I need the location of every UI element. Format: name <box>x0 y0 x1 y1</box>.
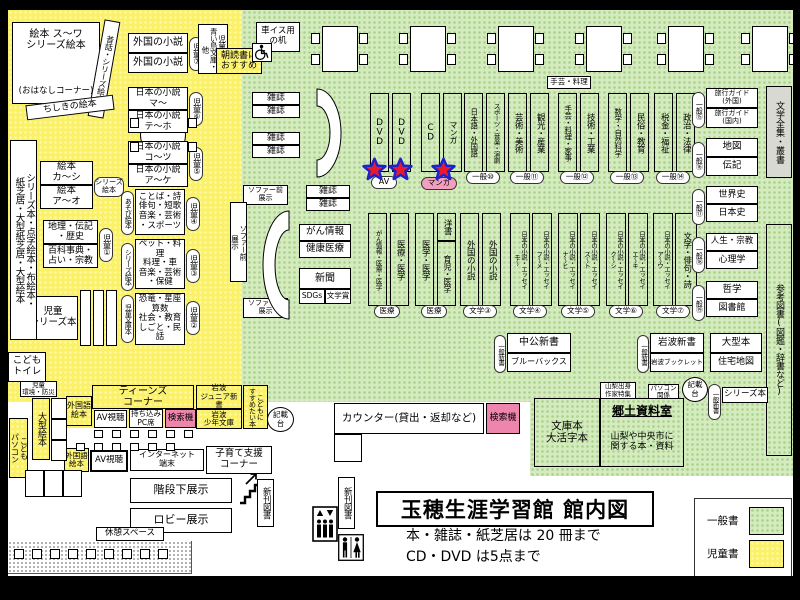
tag-bungaku-4: 文学④ <box>513 305 547 318</box>
chair <box>535 54 544 65</box>
sofa-crescent <box>262 210 290 320</box>
shelf-geijutsu: 芸術・美術 <box>508 93 527 172</box>
chair <box>399 54 408 65</box>
chair <box>94 430 103 438</box>
chair <box>623 54 632 65</box>
tag-ippan-12: 一般⑫ <box>560 171 594 184</box>
library-floor-map: 玉穂生涯学習館 館内図 本・雑誌・紙芝居は 20 冊まで CD・DVD は5点ま… <box>8 10 793 576</box>
chair <box>14 549 24 559</box>
rest-space-label: 休憩スペース <box>96 527 164 541</box>
chair <box>311 54 320 65</box>
ohanashi-corner-label: (おはなしコーナー) <box>8 86 104 98</box>
tag-jido-4: 児童④ <box>186 197 200 231</box>
loan-limit-books: 本・雑誌・紙芝居は 20 冊まで <box>406 526 676 544</box>
legend-general-swatch <box>749 507 784 535</box>
magazine-shelf: 雑誌 <box>306 198 350 211</box>
legend-children-label: 児童書 <box>707 545 749 561</box>
magazine-shelf: 雑誌 <box>252 105 300 118</box>
foreign-novels-shelf: 外国の小説 <box>128 33 188 53</box>
chair <box>148 443 157 451</box>
star-icon <box>431 157 456 182</box>
chair <box>447 33 456 44</box>
magazine-shelf: 雑誌 <box>252 132 300 145</box>
picture-books-a-o: 絵本 ア〜オ <box>40 185 93 209</box>
chair <box>188 118 197 128</box>
chair <box>32 549 42 559</box>
shelf-zeikin: 税金・福祉 <box>654 93 673 172</box>
new-books-shelf-1: 新刊図書 <box>257 479 274 527</box>
kyoryu-shelf: 恐竜・星座 算数 社会・教育 しごと・民話 <box>135 293 185 345</box>
reading-table <box>586 26 622 72</box>
chair <box>741 33 750 44</box>
tag-ippan-16: 一般⑯ <box>692 142 705 178</box>
sofa-front-display: ソファー前 展示 <box>243 185 288 205</box>
chair <box>140 549 150 559</box>
bench-box <box>25 470 44 497</box>
chair <box>623 33 632 44</box>
shelf-bungaku-zenshu: 文学全集・叢書 <box>766 86 792 178</box>
shelf-gijutsu: 技術・工業 <box>580 93 599 172</box>
iwanami-shonen-bunko: 岩波 少年文庫 <box>196 409 242 429</box>
pet-ryori-shelf: ペット・料理 料理・車 音楽・芸術 ・保健 <box>135 239 185 289</box>
chair <box>130 430 139 438</box>
shelf-iryo-igaku: 医療・医学 <box>390 213 409 306</box>
star-icon <box>388 157 413 182</box>
byo-pc-seat: 持ち込み PC席 <box>129 409 163 428</box>
tag-ippan-14: 一般⑭ <box>656 171 690 184</box>
tag-bungaku-6: 文学⑥ <box>609 305 643 318</box>
shelf-nihonshi: 日本史 <box>706 204 758 222</box>
chair <box>311 33 320 44</box>
shelf-chuko-shinsho: 中公新書 <box>507 333 571 353</box>
chiri-denki-shelf: 地理・伝記 ・歴史 <box>43 220 98 244</box>
av-viewing-seat: AV視聴 <box>94 410 127 428</box>
reading-table <box>410 26 446 72</box>
shelf-nihon-essay-fu-me: 日本の小説・エッセイ フ〜メ <box>532 213 552 306</box>
chair <box>148 430 157 438</box>
foreign-picture-books-2: 外国語 絵本 <box>64 448 89 472</box>
shelf-box <box>80 290 91 346</box>
shelf-tetsugaku: 哲学 <box>706 281 758 299</box>
tag-ippan-13: 一般⑬ <box>610 171 644 184</box>
shelf-kanko: 観光・産業 <box>530 93 549 172</box>
tag-jido-5: 児童⑤ <box>189 147 203 181</box>
chair <box>166 443 175 451</box>
chair <box>399 33 408 44</box>
tag-ippan-11: 一般⑪ <box>510 171 544 184</box>
chair <box>130 443 139 451</box>
tag-series-ehon-2: シリーズ絵本 <box>121 243 134 291</box>
chair <box>705 54 714 65</box>
tag-jido-bunko: 児童文庫本 <box>121 295 134 343</box>
chair <box>112 430 121 438</box>
kaidan-shita-display: 階段下展示 <box>130 478 232 503</box>
av-viewing-seat-2: AV視聴 <box>90 450 128 472</box>
shelf-bluebacks: ブルーバックス <box>507 353 571 372</box>
tag-jido-2: 児童② <box>186 301 200 335</box>
loan-limit-av: CD・DVD は5点まで <box>406 547 676 565</box>
shelf-nihongo: 日本語・外国語 <box>464 93 483 172</box>
search-machine-counter: 検索機 <box>486 403 520 434</box>
shelf-igaku: 医学・医学 <box>415 213 434 306</box>
tag-ippan-15: 一般⑮ <box>692 92 705 128</box>
star-icon <box>362 157 387 182</box>
tag-yamanashi-sakka: 山梨出身 作家特集 <box>600 382 636 399</box>
newspaper-shelf: 新聞 <box>299 268 351 289</box>
shelf-box <box>51 419 67 440</box>
shelf-gaikoku-novel: 外国の小説 <box>482 213 501 306</box>
shelf-shugei: 手芸・料理・家事 <box>558 93 577 172</box>
shelf-sekaishi: 世界史 <box>706 186 758 204</box>
chair <box>112 443 121 451</box>
teens-corner-header: ティーンズ コーナー <box>92 385 194 409</box>
chair <box>130 118 139 128</box>
magazine-shelf: 雑誌 <box>252 145 300 158</box>
tag-series-ehon: シリーズ 絵本 <box>94 177 124 197</box>
bench-box <box>63 470 82 497</box>
kosodate-support-corner: 子育て支援 コーナー <box>206 446 272 474</box>
chair <box>487 54 496 65</box>
chair <box>359 33 368 44</box>
kisaidai-writing-stand: 記載 台 <box>267 407 294 432</box>
magazine-shelf: 雑誌 <box>252 92 300 105</box>
shelf-yosho: 洋書 <box>437 213 456 241</box>
shelf-nihon-essay-a-u: 日本の小説・エッセイ ア〜ウ <box>653 213 673 306</box>
shelf-toshokan: 図書館 <box>706 299 758 317</box>
chair <box>789 54 793 65</box>
chair <box>50 549 60 559</box>
chair <box>789 33 793 44</box>
series-tenji-kamishibai-shelf: シリーズ本・点字絵本・布絵本・ 紙芝居・大型紙芝居・大型絵本 <box>10 140 37 340</box>
kodomoni-susumetai: こどもに すすめたい本 <box>243 385 268 429</box>
tag-ippan-shinsho: 一般新書 <box>494 335 506 373</box>
search-machine-teens: 検索機 <box>165 409 196 428</box>
tag-iryo: 医療 <box>374 305 400 318</box>
foreign-novels-shelf: 外国の小説 <box>128 53 188 73</box>
chair <box>487 33 496 44</box>
japanese-novels-a-ke: 日本の小説 ア〜ケ <box>128 164 188 187</box>
tag-ippan-17: 一般⑰ <box>692 189 705 225</box>
shelf-sugaku: 数学・自然科学 <box>608 93 627 172</box>
tag-ippan-18: 一般⑱ <box>692 237 705 273</box>
shelf-travel-foreign: 旅行ガイド (外国) <box>706 88 758 108</box>
shelf-chizu: 地図 <box>706 138 758 157</box>
chair <box>184 430 193 438</box>
shelf-nihon-essay-su-to: 日本の小説・エッセイ ス〜ト <box>580 213 600 306</box>
chair <box>657 33 666 44</box>
chair <box>535 33 544 44</box>
shelf-box <box>51 398 67 419</box>
bench-box <box>44 470 63 497</box>
japanese-novels-ma: 日本の小説 マ〜 <box>128 87 188 110</box>
shelf-box <box>106 290 117 346</box>
shelf-sanko-tosho: 参考図書(図鑑・辞書など) <box>766 224 792 456</box>
shelf-minzoku: 民俗・教育 <box>630 93 649 172</box>
kyodo-shiryo-title: 郷土資料室 <box>602 404 682 420</box>
elevator-icon <box>312 506 338 542</box>
tag-jido-1: 児童① <box>99 228 113 262</box>
shelf-iwanami-booklet: 岩波ブックレット <box>650 353 704 372</box>
tag-ippan-shinsho: 一般新書 <box>637 335 649 373</box>
shelf-shinrigaku: 心理学 <box>706 251 758 269</box>
chair <box>94 443 103 451</box>
tag-ippan-19: 一般⑲ <box>692 285 705 321</box>
chair <box>130 142 139 152</box>
tag-bungaku-5: 文学⑤ <box>561 305 595 318</box>
tag-jido-kankyo: 児童 環境・防災 <box>20 381 57 397</box>
health-medical-shelf: 健康医療 <box>299 241 351 258</box>
shelf-nihon-essay-na-hi: 日本の小説・エッセイ ナ〜ヒ <box>558 213 578 306</box>
counter: カウンター(貸出・返却など) <box>334 403 484 434</box>
chair <box>166 430 175 438</box>
shelf-box <box>93 290 104 346</box>
chair <box>359 54 368 65</box>
reading-table <box>752 26 788 72</box>
tag-ippan-shinsho: 一般新書 <box>708 384 721 420</box>
shelf-jutaku-chizu: 住宅地図 <box>710 353 762 372</box>
chair <box>657 54 666 65</box>
shelf-sports-music: スポーツ・音楽・演劇 <box>486 93 505 172</box>
sofa-front-display-v: ソファー前 展示 <box>230 202 247 282</box>
chair <box>575 33 584 44</box>
magazine-shelf: 雑誌 <box>306 185 350 198</box>
kids-pc: こども パソコン <box>9 418 28 478</box>
sdgs-shelf: SDGs <box>299 289 325 304</box>
restroom-icon <box>338 534 364 561</box>
shelf-series-bon: シリーズ本 <box>722 387 768 403</box>
shelf-nihon-essay-e-ki: 日本の小説・エッセイ エ〜キ <box>628 213 648 306</box>
tag-ippan-10: 一般⑩ <box>466 171 500 184</box>
shelf-ikuji: 育児・医学 <box>437 241 456 306</box>
chair <box>741 54 750 65</box>
shelf-iwanami-shinsho: 岩波新書 <box>650 333 704 353</box>
shelf-gan-iryo: がん情報・医療・医学 <box>368 213 387 306</box>
legend-general-label: 一般書 <box>707 512 749 528</box>
wheelchair-icon <box>252 43 272 62</box>
shelf-denki: 伝記 <box>706 157 758 176</box>
internet-terminal: インターネット 端末 <box>130 449 204 471</box>
page-title: 玉穂生涯学習館 館内図 <box>376 491 654 527</box>
kotoba-shelf: ことば・詩 俳句・短歌 音楽・芸術 ・スポーツ <box>135 189 185 235</box>
ogata-ehon-shelf: 大型絵本 <box>32 398 50 460</box>
chair <box>76 443 85 451</box>
foreign-picture-books: 外国語 絵本 <box>66 396 92 426</box>
chair <box>705 33 714 44</box>
legend-children-swatch <box>749 540 784 568</box>
iwanami-junior-shinsho: 岩波 ジュニア新書 <box>196 385 242 409</box>
chair <box>447 54 456 65</box>
tag-jido-3: 児童③ <box>186 249 200 283</box>
shelf-gaikoku-novel: 外国の小説 <box>460 213 479 306</box>
legend: 一般書 児童書 <box>694 498 792 576</box>
chair <box>122 549 132 559</box>
tag-bungaku-7: 文学⑦ <box>656 305 690 318</box>
kisaidai-writing-stand: 記載 台 <box>682 377 708 402</box>
bungakusho-shelf: 文学賞 <box>325 289 351 304</box>
tag-shugei-ryori: 手芸・料理 <box>547 76 591 89</box>
reading-table <box>322 26 358 72</box>
shelf-nihon-essay-ku-shi: 日本の小説・エッセイ ク〜シ <box>606 213 626 306</box>
shelf-bunkobon: 文庫本 大活字本 <box>534 398 600 467</box>
chair <box>104 549 114 559</box>
cancer-info-shelf: がん情報 <box>299 224 351 241</box>
new-books-shelf-2: 新刊図書 <box>338 477 355 529</box>
chair <box>158 549 168 559</box>
counter-return <box>334 434 362 462</box>
tag-iryo: 医療 <box>421 305 447 318</box>
tag-bungaku-3: 文学③ <box>463 305 497 318</box>
shelf-box <box>51 440 67 461</box>
chair <box>86 549 96 559</box>
tag-asobi-ehon: あそび絵本 <box>121 191 134 235</box>
kids-toilet: こども トイレ <box>8 352 46 382</box>
shelf-travel-domestic: 旅行ガイド (国内) <box>706 108 758 128</box>
hyakka-shelf: 百科事典・ 占い・宗教 <box>43 244 98 268</box>
shelf-jinsei: 人生・宗教 <box>706 233 758 251</box>
reading-table <box>498 26 534 72</box>
sofa-crescent <box>316 88 342 178</box>
shelf-ogata-bon: 大型本 <box>710 333 762 353</box>
picture-books-ka-shi: 絵本 カ〜シ <box>40 161 93 185</box>
chair <box>575 54 584 65</box>
shelf-nihon-essay-mo: 日本の小説・エッセイ モ〜 <box>510 213 530 306</box>
chair <box>68 549 78 559</box>
kyodo-shiryo-desc: 山梨や中央市に 関する本・資料 <box>602 424 682 460</box>
reading-table <box>668 26 704 72</box>
chair <box>188 142 197 152</box>
